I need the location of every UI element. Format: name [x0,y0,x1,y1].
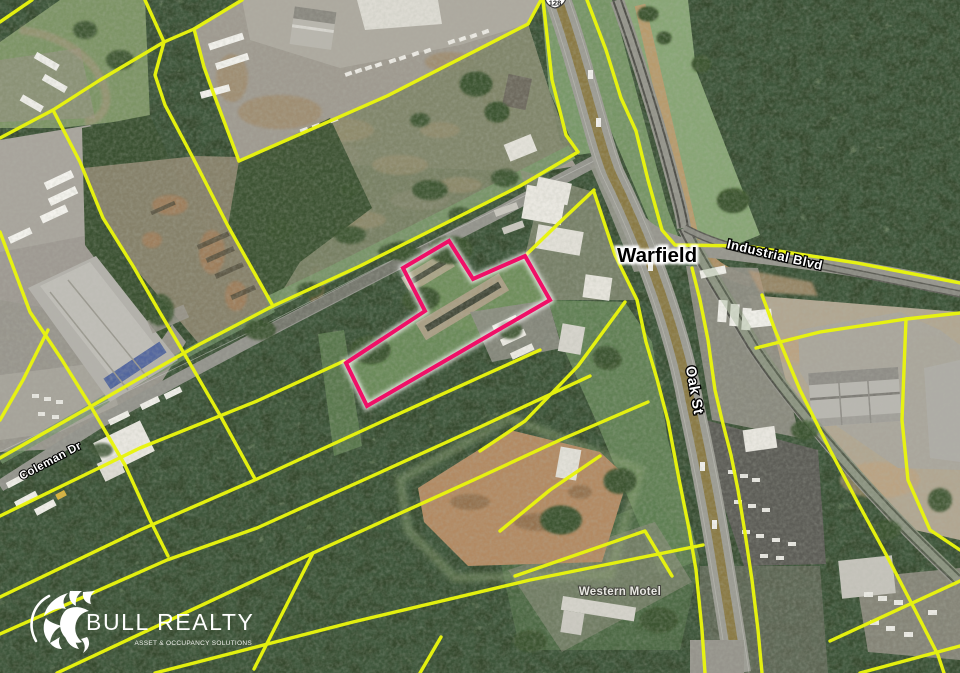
svg-text:ASSET & OCCUPANCY SOLUTIONS: ASSET & OCCUPANCY SOLUTIONS [134,640,252,647]
svg-text:Western Motel: Western Motel [579,586,661,598]
svg-text:128: 128 [549,0,562,8]
svg-text:Warfield: Warfield [617,244,697,267]
svg-text:BULL REALTY: BULL REALTY [86,609,254,635]
